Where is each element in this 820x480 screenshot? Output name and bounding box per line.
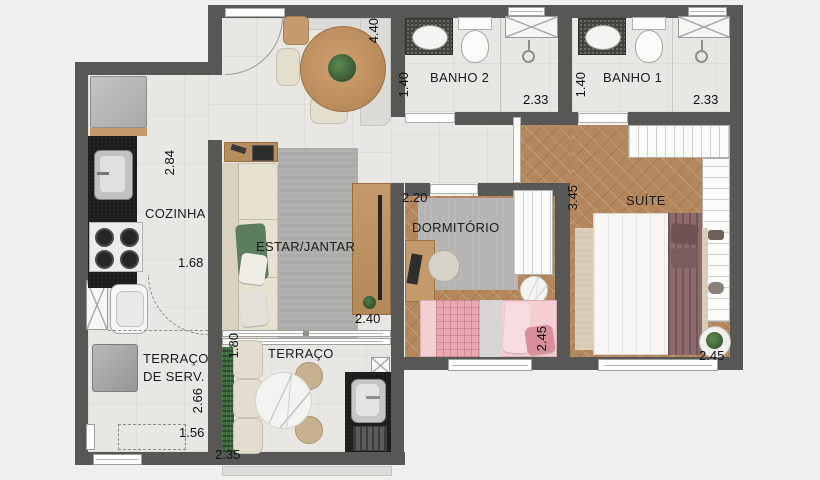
grill bbox=[353, 426, 387, 451]
banho1-shower-head bbox=[695, 50, 708, 63]
suite-wardrobe-top bbox=[628, 125, 730, 158]
desk-chair bbox=[428, 250, 460, 282]
dim-dormitorio-width: 2.20 bbox=[402, 190, 427, 205]
wall-kitchen-living bbox=[208, 140, 222, 465]
wardrobe-item bbox=[708, 282, 724, 294]
entry-door-leaf bbox=[225, 8, 285, 17]
room-label-estar-jantar: ESTAR/JANTAR bbox=[256, 239, 355, 254]
dim-terraco-width: 2.35 bbox=[215, 447, 240, 462]
banho2-toilet-tank bbox=[458, 17, 492, 30]
room-label-banho1: BANHO 1 bbox=[603, 70, 662, 85]
banho2-toilet-bowl bbox=[461, 30, 489, 63]
banho2-shower-stem bbox=[528, 40, 530, 51]
wall-banho-divider bbox=[558, 5, 572, 112]
banho2-shower-divider bbox=[500, 18, 501, 112]
panel-plant bbox=[363, 296, 376, 309]
banho2-sink bbox=[412, 25, 448, 50]
banho2-door-leaf bbox=[405, 113, 455, 123]
banho1-door-leaf bbox=[578, 113, 628, 123]
dining-chair-left bbox=[276, 48, 300, 86]
dim-terraco-serv-length: 2.66 bbox=[190, 388, 205, 413]
suite-pillow bbox=[670, 223, 699, 245]
dim-suite-length: 3.45 bbox=[565, 185, 580, 210]
projection-dashed-rect bbox=[118, 424, 186, 450]
banho1-shower-box bbox=[678, 16, 730, 38]
wall-banho2-west bbox=[391, 5, 405, 117]
window-banho1 bbox=[688, 7, 727, 16]
wall-entry-corner bbox=[208, 5, 222, 63]
laundry-tub-basin bbox=[116, 291, 144, 327]
banho2-shower-box bbox=[505, 16, 558, 38]
sofa-pillow bbox=[238, 252, 268, 285]
console-frame bbox=[252, 145, 274, 161]
wall-west bbox=[75, 62, 88, 465]
window-dormitorio bbox=[448, 359, 532, 371]
room-label-banho2: BANHO 2 bbox=[430, 70, 489, 85]
wall-banhos-south-b bbox=[628, 112, 730, 125]
sofa-pillow bbox=[238, 290, 269, 327]
dim-banho1-width: 1.40 bbox=[573, 72, 588, 97]
suite-plant bbox=[706, 332, 723, 349]
kitchen-counter-wood bbox=[90, 128, 147, 136]
tv-panel bbox=[352, 183, 391, 315]
dining-chair-top bbox=[283, 16, 309, 45]
dim-dormitorio-length: 2.45 bbox=[534, 326, 549, 351]
banho1-shower-divider bbox=[672, 18, 673, 112]
stove-burner bbox=[95, 228, 114, 247]
wardrobe-item bbox=[708, 230, 724, 240]
window-serv-south bbox=[93, 454, 142, 465]
dim-banho2-length: 2.33 bbox=[523, 92, 548, 107]
tv-screen bbox=[378, 195, 382, 300]
room-label-terraco-serv-1: TERRAÇO bbox=[143, 351, 209, 366]
banho1-toilet-bowl bbox=[635, 30, 663, 63]
dim-terraco-serv-width: 1.56 bbox=[179, 425, 204, 440]
fridge bbox=[90, 76, 147, 128]
floor-threshold bbox=[513, 117, 521, 183]
dim-banho2-width: 1.40 bbox=[396, 72, 411, 97]
table-plant bbox=[328, 54, 356, 82]
kitchen-faucet bbox=[97, 172, 109, 175]
wall-wing-north bbox=[75, 62, 222, 75]
window-serv-west bbox=[86, 424, 95, 450]
sliding-door-handle bbox=[303, 331, 309, 336]
terrace-sink-basin bbox=[356, 384, 379, 416]
dim-cozinha-width: 1.68 bbox=[178, 255, 203, 270]
banho1-toilet-tank bbox=[632, 17, 666, 30]
wall-east bbox=[730, 5, 743, 370]
room-label-suite: SUÍTE bbox=[626, 193, 666, 208]
bed-fold bbox=[480, 300, 502, 357]
stove-burner bbox=[95, 250, 114, 269]
room-label-cozinha: COZINHA bbox=[145, 206, 206, 221]
dormitorio-door-leaf bbox=[430, 184, 478, 194]
suite-pillow bbox=[670, 247, 698, 269]
dim-cozinha-length: 2.84 bbox=[162, 150, 177, 175]
dim-estar-width: 2.40 bbox=[355, 311, 380, 326]
sofa-seam bbox=[238, 219, 278, 220]
stove-burner bbox=[120, 250, 139, 269]
dim-suite-width: 2.45 bbox=[699, 348, 724, 363]
dim-estar-length: 4.40 bbox=[366, 18, 381, 43]
stove-burner bbox=[120, 228, 139, 247]
terrace-marble-table bbox=[255, 372, 312, 429]
room-label-terraco: TERRAÇO bbox=[268, 346, 334, 361]
room-label-terraco-serv-2: DE SERV. bbox=[143, 369, 205, 384]
banho1-sink bbox=[585, 25, 621, 50]
washing-machine bbox=[92, 344, 138, 392]
room-label-dormitorio: DORMITÓRIO bbox=[412, 220, 500, 235]
terrace-railing bbox=[222, 466, 392, 476]
dim-banho1-length: 2.33 bbox=[693, 92, 718, 107]
terrace-faucet bbox=[366, 396, 380, 399]
dormitorio-wardrobe bbox=[513, 190, 553, 275]
wall-living-dorm bbox=[391, 183, 404, 465]
dim-terraco-length: 1.80 bbox=[226, 333, 241, 358]
floor-hallway bbox=[391, 117, 517, 183]
bed-throw-blanket bbox=[436, 300, 480, 357]
banho1-shower-stem bbox=[701, 40, 703, 51]
banho2-shower-head bbox=[522, 50, 535, 63]
floor-plan: COZINHA ESTAR/JANTAR DORMITÓRIO SUÍTE BA… bbox=[0, 0, 820, 480]
window-banho2 bbox=[508, 7, 545, 16]
